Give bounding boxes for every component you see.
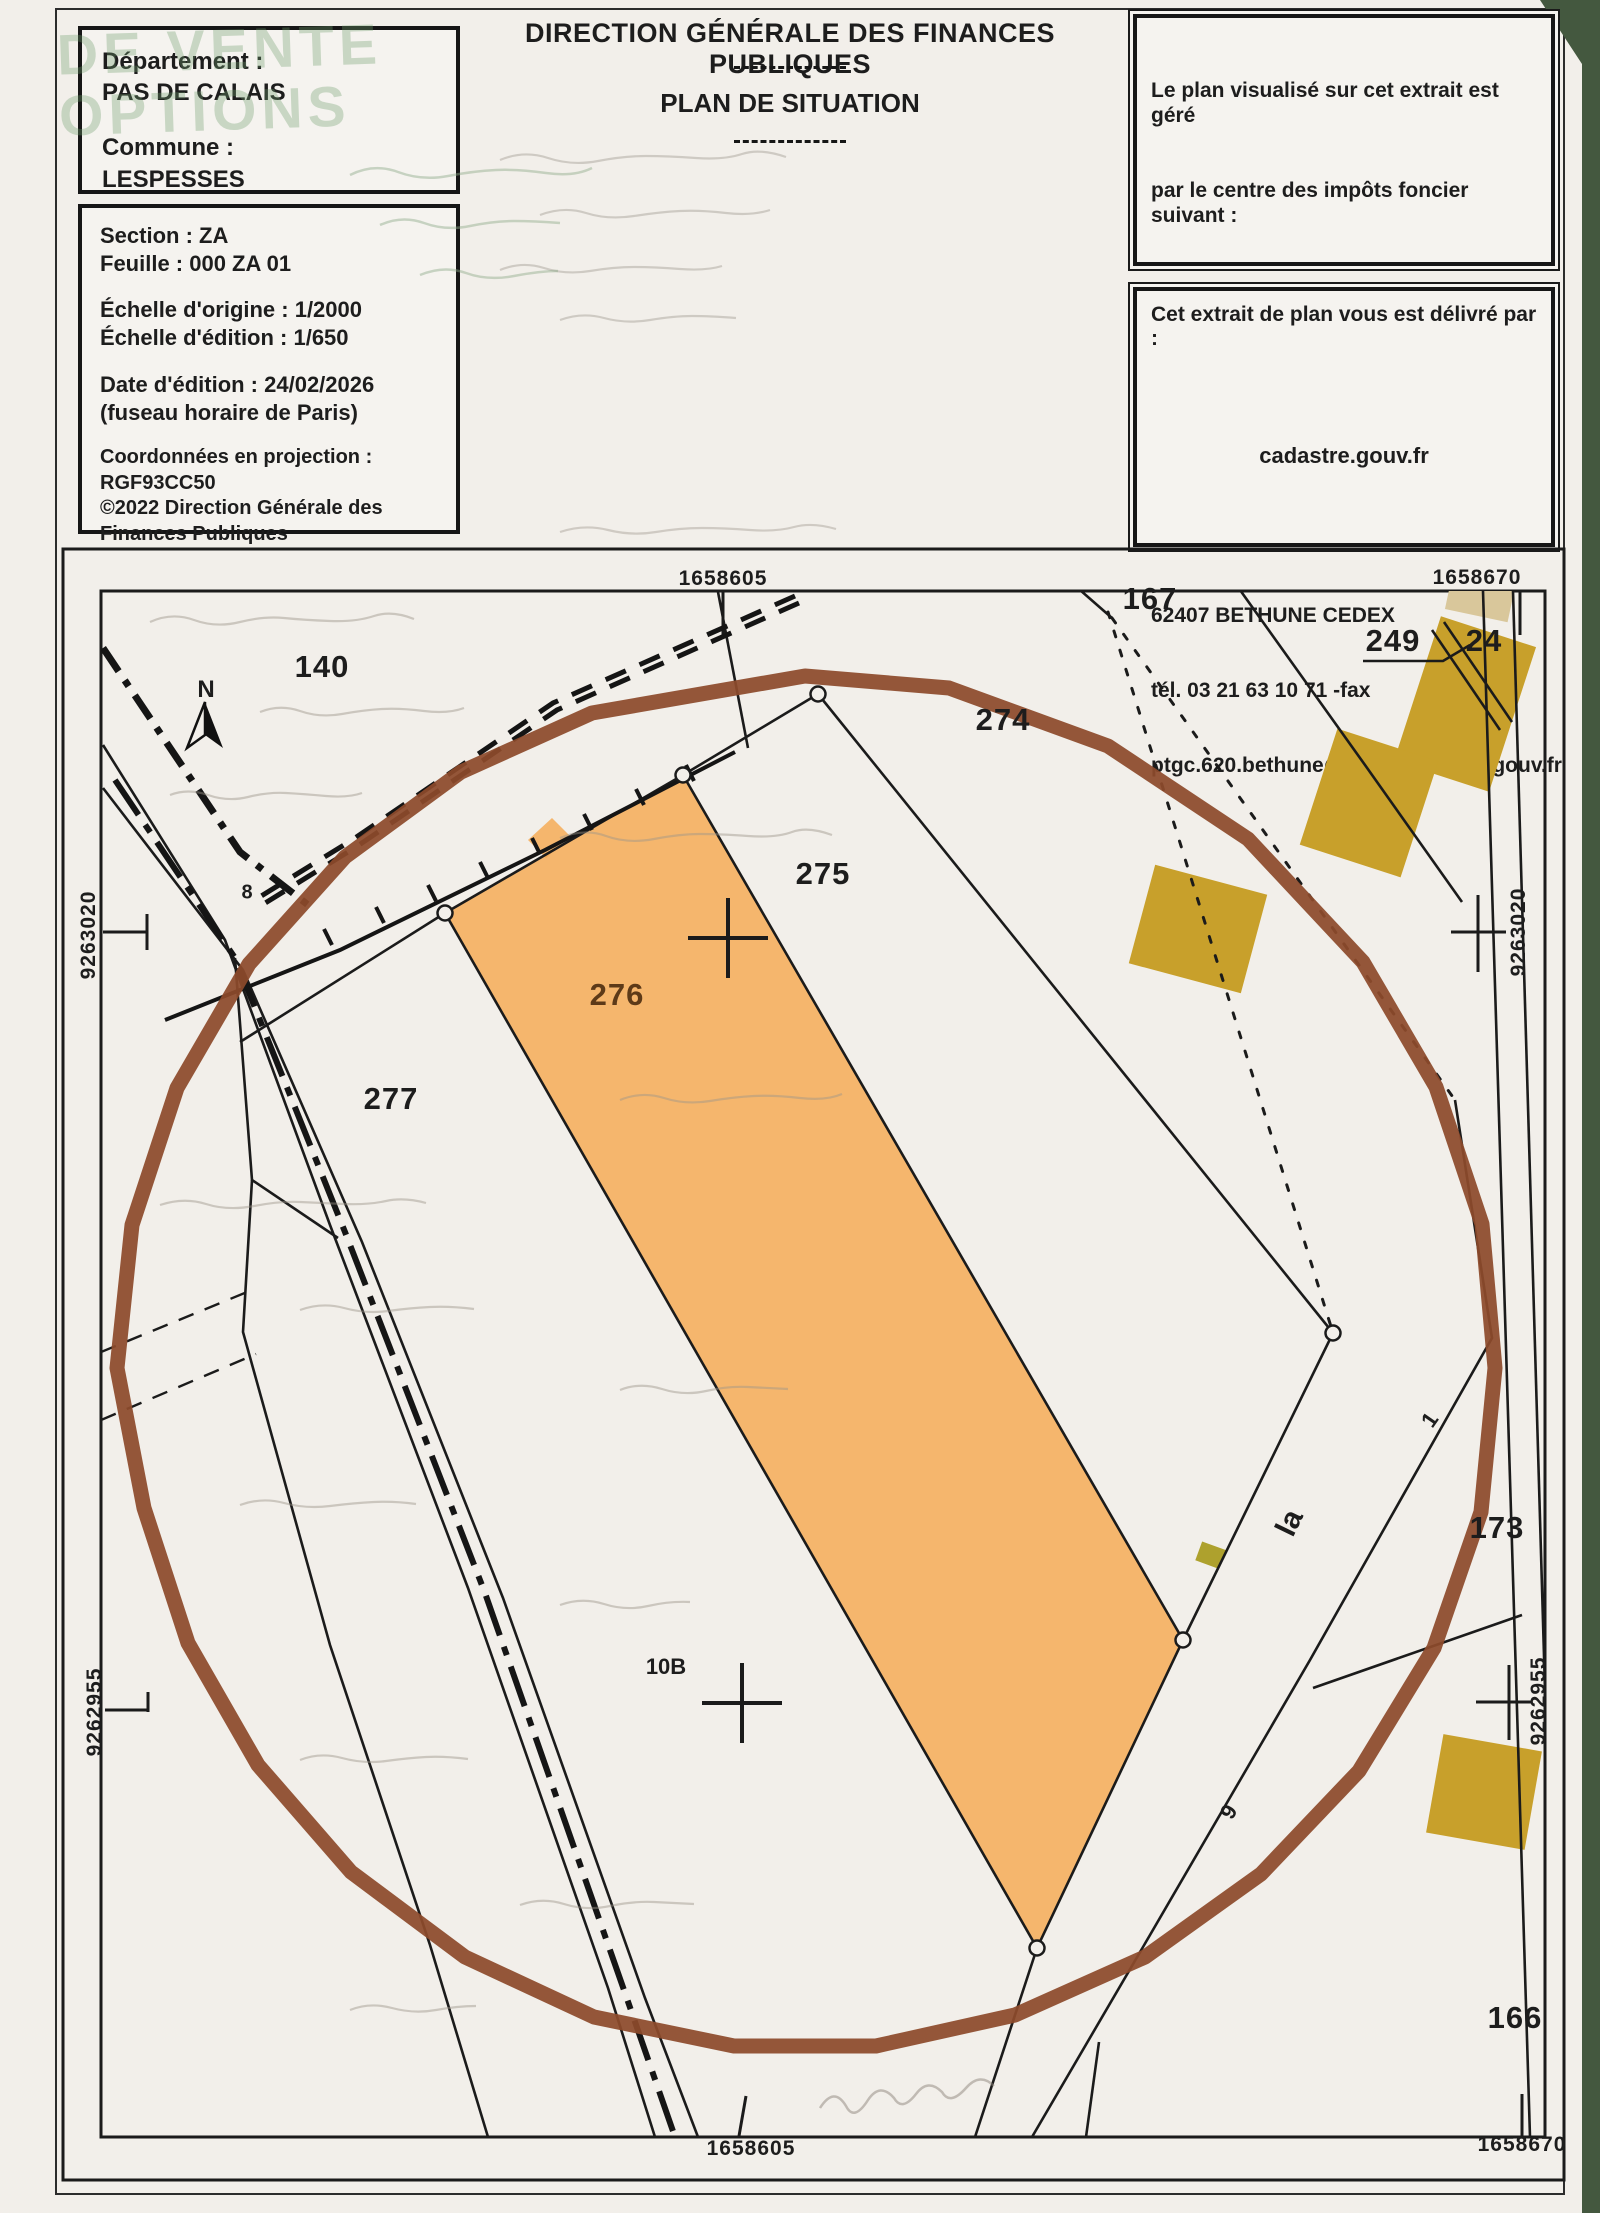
projection-value: Coordonnées en projection : RGF93CC50 (100, 445, 438, 496)
copyright-note: ©2022 Direction Générale des Finances Pu… (100, 496, 438, 547)
y-coordinate-left-lower: 9262955 (83, 1668, 107, 1757)
delivery-value: cadastre.gouv.fr (1151, 443, 1537, 469)
x-coordinate-top-right: 1658670 (1433, 566, 1522, 590)
parcel-label-274: 274 (976, 702, 1031, 738)
delivery-label: Cet extrait de plan vous est délivré par… (1151, 303, 1537, 351)
office-line: tél. 03 21 63 10 71 -fax (1151, 678, 1537, 703)
parcel-label-276: 276 (590, 977, 645, 1013)
y-coordinate-right-upper: 9263020 (1507, 888, 1531, 977)
office-line: Le plan visualisé sur cet extrait est gé… (1151, 78, 1537, 128)
label-10b: 10B (646, 1654, 686, 1680)
scanned-cadastral-extract: { "header": { "watermark_lines": ["DE VE… (0, 0, 1600, 2213)
parcel-label-24: 24 (1466, 623, 1502, 659)
department-value: PAS DE CALAIS (102, 77, 436, 108)
department-label: Département : (102, 46, 436, 77)
sheet-value: Feuille : 000 ZA 01 (100, 250, 438, 278)
tax-office-box: Le plan visualisé sur cet extrait est gé… (1133, 14, 1555, 266)
commune-label: Commune : (102, 132, 436, 163)
parcel-label-249: 249 (1366, 623, 1421, 659)
spacer (102, 108, 436, 132)
document-subtitle: PLAN DE SITUATION (450, 88, 1130, 119)
divider-dashes (734, 140, 846, 143)
divider-dashes (734, 66, 846, 69)
x-coordinate-bottom-left: 1658605 (707, 2137, 796, 2161)
y-coordinate-right-lower: 9262955 (1527, 1657, 1551, 1746)
parcel-label-275: 275 (796, 856, 851, 892)
parcel-label-173: 173 (1470, 1510, 1525, 1546)
department-box: Département : PAS DE CALAIS Commune : LE… (78, 26, 460, 194)
document-title: DIRECTION GÉNÉRALE DES FINANCES PUBLIQUE… (450, 18, 1130, 80)
section-value: Section : ZA (100, 222, 438, 250)
spacer (100, 278, 438, 296)
parcel-label-277: 277 (364, 1081, 419, 1117)
scale-edition-value: Échelle d'édition : 1/650 (100, 324, 438, 352)
spacer (100, 427, 438, 445)
spacer (100, 353, 438, 371)
x-coordinate-top-left: 1658605 (679, 567, 768, 591)
parcel-label-166: 166 (1488, 2000, 1543, 2036)
parcel-label-140: 140 (295, 649, 350, 685)
sheet-info-box: Section : ZA Feuille : 000 ZA 01 Échelle… (78, 204, 460, 534)
parcel-label-167: 167 (1123, 581, 1178, 617)
delivery-box: Cet extrait de plan vous est délivré par… (1133, 287, 1555, 547)
north-label: N (197, 676, 214, 704)
office-line: par le centre des impôts foncier suivant… (1151, 178, 1537, 228)
x-coordinate-bottom-right: 1658670 (1478, 2133, 1567, 2157)
label-8: 8 (241, 882, 252, 905)
edition-date-value: Date d'édition : 24/02/2026 (100, 371, 438, 399)
timezone-note: (fuseau horaire de Paris) (100, 399, 438, 427)
scan-edge-strip (1582, 0, 1600, 2213)
office-line: ptgc.620.bethune@dgfip.finances.gouv.fr (1151, 753, 1537, 778)
commune-value: LESPESSES (102, 164, 436, 195)
scale-origin-value: Échelle d'origine : 1/2000 (100, 296, 438, 324)
y-coordinate-left-upper: 9263020 (77, 891, 101, 980)
